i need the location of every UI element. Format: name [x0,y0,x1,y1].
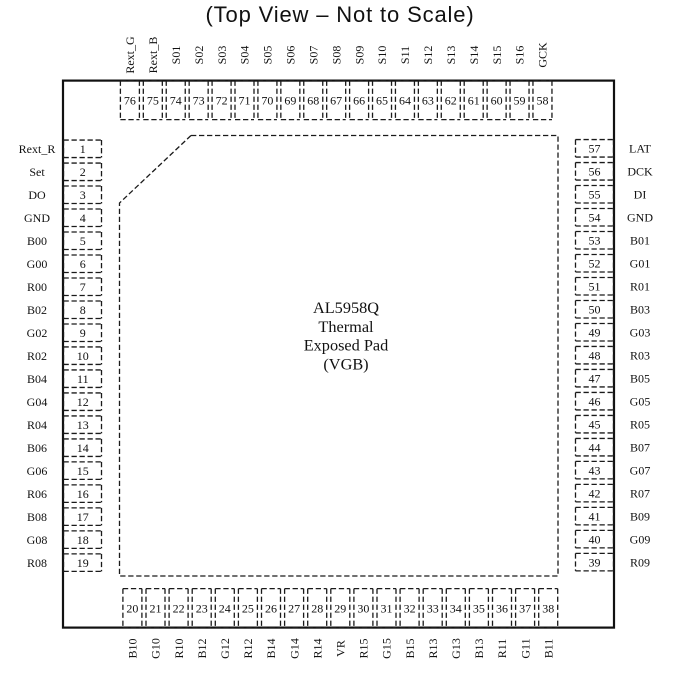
svg-text:49: 49 [589,325,601,339]
svg-text:76: 76 [124,94,136,108]
svg-text:R00: R00 [27,280,47,294]
svg-text:59: 59 [514,94,526,108]
svg-text:36: 36 [496,602,508,616]
svg-text:3: 3 [80,188,86,202]
svg-text:G14: G14 [287,638,301,659]
svg-text:R12: R12 [241,638,255,658]
svg-text:32: 32 [404,602,416,616]
svg-text:38: 38 [542,602,554,616]
svg-text:34: 34 [450,602,462,616]
svg-text:46: 46 [589,394,601,408]
svg-text:33: 33 [427,602,439,616]
svg-text:R04: R04 [27,418,47,432]
svg-text:G03: G03 [630,325,651,339]
svg-text:B14: B14 [264,638,278,658]
svg-text:R05: R05 [630,417,650,431]
svg-text:G01: G01 [630,256,651,270]
svg-text:7: 7 [80,280,86,294]
svg-text:B13: B13 [472,638,486,658]
svg-text:G06: G06 [27,464,48,478]
svg-text:G00: G00 [27,257,48,271]
svg-text:11: 11 [77,372,89,386]
svg-text:8: 8 [80,303,86,317]
svg-text:S10: S10 [375,46,389,65]
svg-text:G15: G15 [380,638,394,659]
svg-text:58: 58 [536,94,548,108]
svg-text:25: 25 [242,602,254,616]
svg-text:71: 71 [239,94,251,108]
svg-text:19: 19 [77,556,89,570]
svg-text:DCK: DCK [627,164,653,178]
svg-text:R10: R10 [172,638,186,658]
svg-text:S08: S08 [329,46,343,65]
svg-text:9: 9 [80,326,86,340]
svg-text:69: 69 [284,94,296,108]
svg-text:B02: B02 [27,303,47,317]
svg-text:B15: B15 [403,638,417,658]
svg-text:68: 68 [307,94,319,108]
svg-text:65: 65 [376,94,388,108]
svg-text:63: 63 [422,94,434,108]
svg-text:15: 15 [77,464,89,478]
svg-text:G08: G08 [27,533,48,547]
svg-text:53: 53 [589,233,601,247]
svg-text:DI: DI [634,187,647,201]
svg-text:55: 55 [589,187,601,201]
svg-text:S09: S09 [352,46,366,65]
svg-text:57: 57 [589,142,601,156]
svg-text:64: 64 [399,94,411,108]
svg-text:S15: S15 [490,46,504,65]
svg-text:41: 41 [589,509,601,523]
svg-text:G02: G02 [27,326,48,340]
svg-text:B06: B06 [27,441,47,455]
svg-text:44: 44 [589,440,601,454]
svg-text:23: 23 [196,602,208,616]
svg-text:B11: B11 [541,639,555,659]
svg-text:LAT: LAT [629,142,652,156]
svg-text:39: 39 [589,555,601,569]
svg-text:R01: R01 [630,279,650,293]
svg-text:S02: S02 [192,46,206,65]
svg-text:G09: G09 [630,532,651,546]
svg-text:S14: S14 [467,46,481,65]
svg-text:B09: B09 [630,509,650,523]
svg-text:B08: B08 [27,510,47,524]
svg-text:B03: B03 [630,302,650,316]
svg-text:2: 2 [80,165,86,179]
svg-text:40: 40 [589,532,601,546]
svg-text:VR: VR [334,640,348,657]
svg-text:51: 51 [589,279,601,293]
svg-text:26: 26 [265,602,277,616]
svg-text:47: 47 [589,371,601,385]
svg-text:24: 24 [219,602,231,616]
svg-text:17: 17 [77,510,89,524]
svg-text:Rext_B: Rext_B [146,37,160,74]
svg-text:12: 12 [77,395,89,409]
svg-text:(VGB): (VGB) [323,354,368,373]
svg-text:31: 31 [381,602,393,616]
svg-text:G07: G07 [630,463,651,477]
svg-text:GND: GND [24,211,50,225]
svg-text:S04: S04 [238,46,252,65]
svg-text:R15: R15 [357,638,371,658]
svg-text:R06: R06 [27,487,47,501]
svg-text:75: 75 [147,94,159,108]
svg-text:52: 52 [589,256,601,270]
svg-text:22: 22 [173,602,185,616]
svg-text:28: 28 [311,602,323,616]
svg-text:70: 70 [261,94,273,108]
svg-text:B00: B00 [27,234,47,248]
svg-text:50: 50 [589,302,601,316]
svg-text:G05: G05 [630,394,651,408]
svg-text:S05: S05 [261,46,275,65]
svg-text:Rext_G: Rext_G [123,36,137,74]
svg-text:20: 20 [126,602,138,616]
svg-text:Set: Set [29,165,45,179]
svg-text:1: 1 [80,142,86,156]
svg-text:6: 6 [80,257,86,271]
svg-text:S11: S11 [398,46,412,64]
svg-text:R03: R03 [630,348,650,362]
svg-text:21: 21 [150,602,162,616]
svg-text:B01: B01 [630,233,650,247]
svg-text:72: 72 [216,94,228,108]
svg-text:S13: S13 [444,46,458,65]
svg-text:R02: R02 [27,349,47,363]
svg-text:G04: G04 [27,395,48,409]
svg-text:GND: GND [627,210,653,224]
svg-text:(Top View – Not to Scale): (Top View – Not to Scale) [205,2,474,27]
svg-text:R07: R07 [630,486,650,500]
svg-text:61: 61 [468,94,480,108]
svg-text:67: 67 [330,94,342,108]
svg-text:S07: S07 [306,46,320,65]
svg-text:62: 62 [445,94,457,108]
svg-text:R14: R14 [310,638,324,658]
svg-text:54: 54 [589,210,601,224]
svg-text:G13: G13 [449,638,463,659]
svg-text:S01: S01 [169,46,183,65]
svg-text:5: 5 [80,234,86,248]
svg-text:Thermal: Thermal [318,317,374,336]
svg-text:G12: G12 [218,638,232,659]
svg-text:B04: B04 [27,372,47,386]
svg-text:B05: B05 [630,371,650,385]
svg-text:S06: S06 [284,46,298,65]
svg-text:4: 4 [80,211,86,225]
svg-text:B07: B07 [630,440,650,454]
svg-text:R08: R08 [27,556,47,570]
svg-text:42: 42 [589,486,601,500]
svg-text:10: 10 [77,349,89,363]
svg-text:27: 27 [288,602,300,616]
svg-text:G11: G11 [518,638,532,658]
svg-text:B10: B10 [126,638,140,658]
svg-text:30: 30 [357,602,369,616]
svg-text:48: 48 [589,348,601,362]
svg-text:G10: G10 [149,638,163,659]
svg-text:45: 45 [589,417,601,431]
svg-text:16: 16 [77,487,89,501]
svg-text:35: 35 [473,602,485,616]
svg-text:73: 73 [193,94,205,108]
svg-text:AL5958Q: AL5958Q [313,298,379,317]
svg-text:29: 29 [334,602,346,616]
svg-text:13: 13 [77,418,89,432]
svg-text:74: 74 [170,94,182,108]
svg-text:Exposed Pad: Exposed Pad [304,336,389,355]
svg-text:37: 37 [519,602,531,616]
svg-text:56: 56 [589,164,601,178]
svg-text:Rext_R: Rext_R [19,142,56,156]
svg-text:B12: B12 [195,638,209,658]
svg-text:S03: S03 [215,46,229,65]
svg-text:R11: R11 [495,639,509,659]
svg-text:14: 14 [77,441,89,455]
svg-text:GCK: GCK [536,42,550,68]
svg-text:43: 43 [589,463,601,477]
svg-text:R09: R09 [630,555,650,569]
svg-text:66: 66 [353,94,365,108]
svg-text:60: 60 [491,94,503,108]
svg-text:R13: R13 [426,638,440,658]
svg-text:18: 18 [77,533,89,547]
svg-text:S16: S16 [513,46,527,65]
svg-text:DO: DO [28,188,46,202]
svg-text:S12: S12 [421,46,435,65]
